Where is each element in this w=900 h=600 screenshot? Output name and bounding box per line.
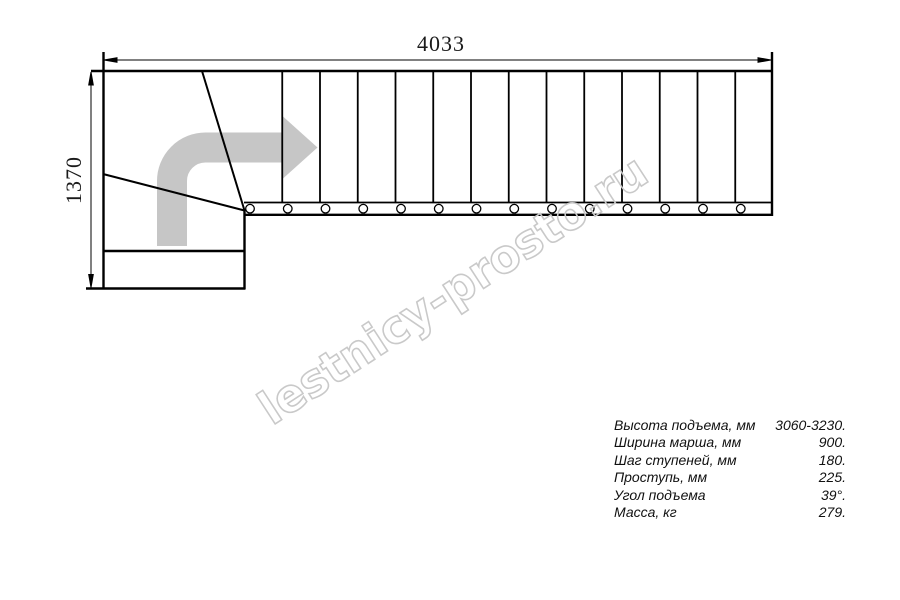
baluster-circle — [397, 204, 406, 213]
dimension-value-left: 1370 — [61, 130, 83, 230]
spec-row-step-rise: Шаг ступеней, мм 180. — [614, 452, 846, 469]
spec-row-tread-depth: Проступь, мм 225. — [614, 469, 846, 486]
dimension-value-top: 4033 — [391, 31, 491, 57]
staircase-plan-drawing: lestnicy-prosto.ru 4033 1370 Высота подъ… — [0, 0, 900, 600]
dim-arrow-up — [89, 72, 94, 85]
dim-arrow-right — [758, 58, 771, 63]
watermark-text: lestnicy-prosto.ru — [249, 144, 657, 435]
spec-value: 279. — [819, 504, 846, 521]
spec-label: Высота подъема, мм — [614, 417, 756, 434]
dim-arrow-down — [89, 275, 94, 288]
spec-label: Ширина марша, мм — [614, 434, 741, 451]
spec-row-height: Высота подъема, мм 3060-3230. — [614, 417, 846, 434]
baluster-circle — [321, 204, 330, 213]
baluster-circle — [699, 204, 708, 213]
specs-table: Высота подъема, мм 3060-3230. Ширина мар… — [614, 417, 846, 521]
baluster-circle — [434, 204, 443, 213]
straight-flight-treads — [246, 71, 745, 213]
spec-label: Угол подъема — [614, 487, 706, 504]
spec-value: 225. — [819, 469, 846, 486]
baluster-circle — [246, 204, 255, 213]
baluster-circle — [359, 204, 368, 213]
spec-label: Шаг ступеней, мм — [614, 452, 737, 469]
spec-row-flight-width: Ширина марша, мм 900. — [614, 434, 846, 451]
spec-row-mass: Масса, кг 279. — [614, 504, 846, 521]
baluster-circle — [661, 204, 670, 213]
baluster-circle — [472, 204, 481, 213]
baluster-circle — [736, 204, 745, 213]
baluster-circle — [283, 204, 292, 213]
spec-value: 3060-3230. — [775, 417, 846, 434]
direction-arrow-head — [283, 117, 318, 179]
spec-value: 180. — [819, 452, 846, 469]
spec-row-angle: Угол подъема 39°. — [614, 487, 846, 504]
dimension-lines — [89, 58, 771, 288]
spec-label: Масса, кг — [614, 504, 677, 521]
spec-value: 900. — [819, 434, 846, 451]
spec-value: 39°. — [821, 487, 846, 504]
spec-label: Проступь, мм — [614, 469, 707, 486]
dim-arrow-left — [104, 58, 117, 63]
baluster-circle — [510, 204, 519, 213]
